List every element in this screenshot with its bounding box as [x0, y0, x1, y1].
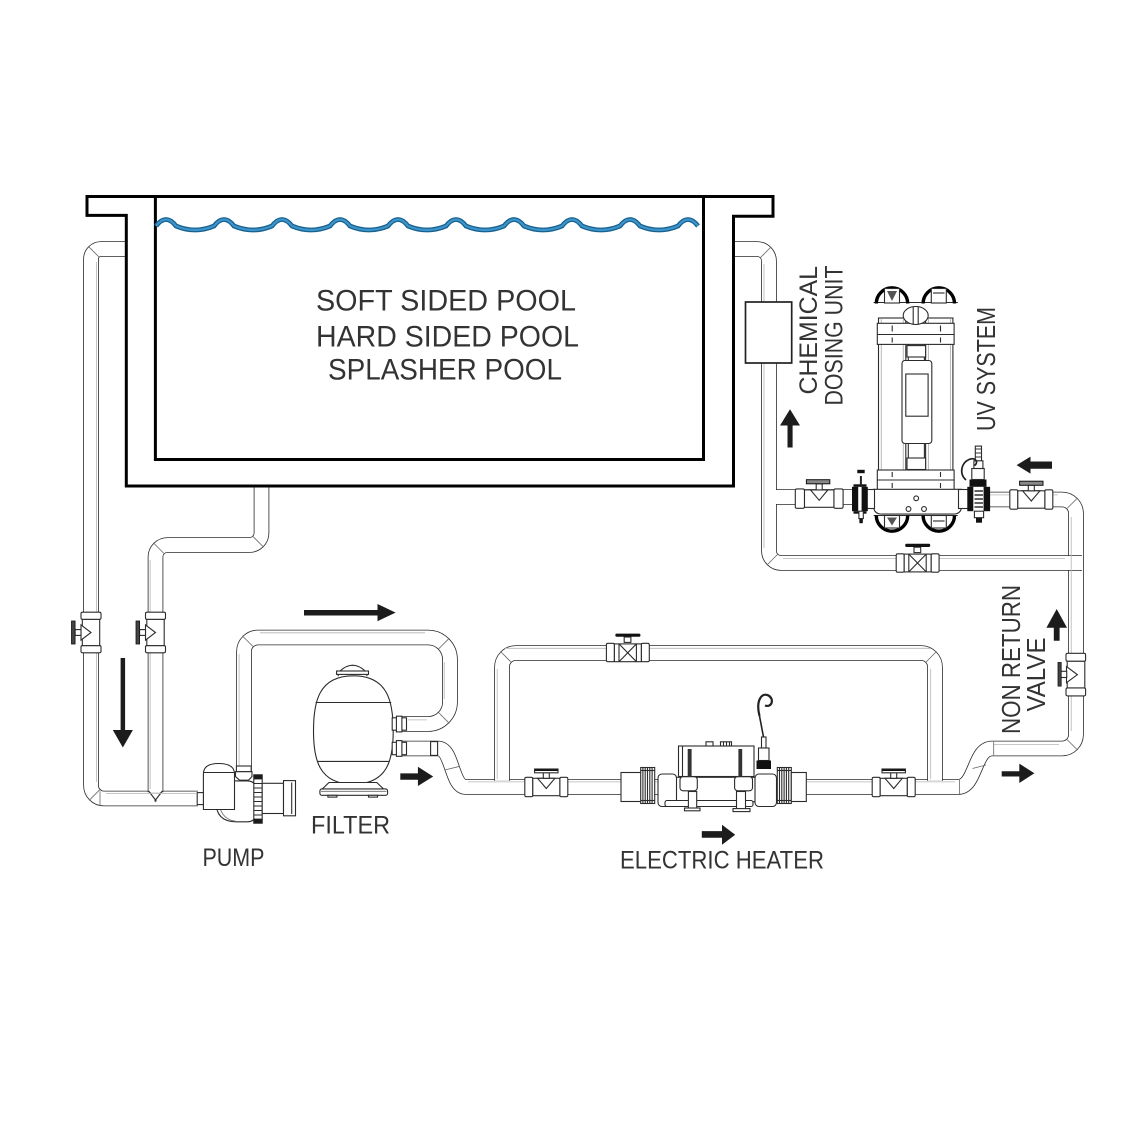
- svg-text:SOFT SIDED POOL: SOFT SIDED POOL: [316, 285, 576, 318]
- svg-text:VALVE: VALVE: [1023, 638, 1051, 712]
- svg-text:PUMP: PUMP: [203, 844, 265, 872]
- svg-text:UV SYSTEM: UV SYSTEM: [971, 307, 1001, 431]
- svg-text:SPLASHER POOL: SPLASHER POOL: [328, 354, 562, 387]
- svg-text:NON RETURN: NON RETURN: [998, 585, 1026, 734]
- svg-text:CHEMICAL: CHEMICAL: [795, 266, 823, 395]
- svg-text:FILTER: FILTER: [311, 812, 390, 840]
- svg-text:ELECTRIC HEATER: ELECTRIC HEATER: [620, 847, 824, 875]
- svg-text:HARD SIDED POOL: HARD SIDED POOL: [316, 321, 579, 354]
- svg-text:DOSING UNIT: DOSING UNIT: [821, 266, 849, 406]
